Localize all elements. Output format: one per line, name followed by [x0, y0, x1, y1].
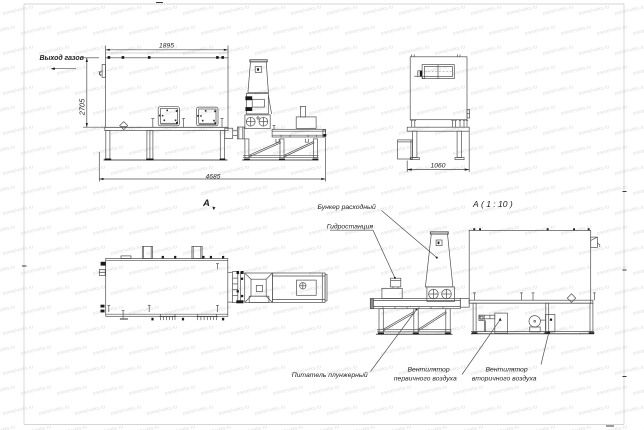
- svg-text:Гидростанция: Гидростанция: [327, 223, 374, 231]
- svg-text:1895: 1895: [159, 43, 174, 50]
- svg-text:4685: 4685: [206, 173, 221, 180]
- svg-text:1060: 1060: [431, 163, 446, 170]
- svg-text:первичного воздуха: первичного воздуха: [394, 374, 457, 382]
- svg-text:Питатель плунжерный: Питатель плунжерный: [292, 371, 368, 379]
- svg-text:Бункер расходный: Бункер расходный: [318, 203, 376, 211]
- svg-text:А ( 1 : 10 ): А ( 1 : 10 ): [472, 199, 513, 209]
- svg-text:Вентилятор: Вентилятор: [486, 366, 528, 373]
- svg-text:А: А: [202, 198, 210, 209]
- svg-text:Вентилятор: Вентилятор: [408, 366, 450, 373]
- svg-text:вторичного воздуха: вторичного воздуха: [472, 374, 537, 382]
- svg-text:Выход газов: Выход газов: [40, 54, 85, 62]
- svg-text:2705: 2705: [78, 98, 87, 116]
